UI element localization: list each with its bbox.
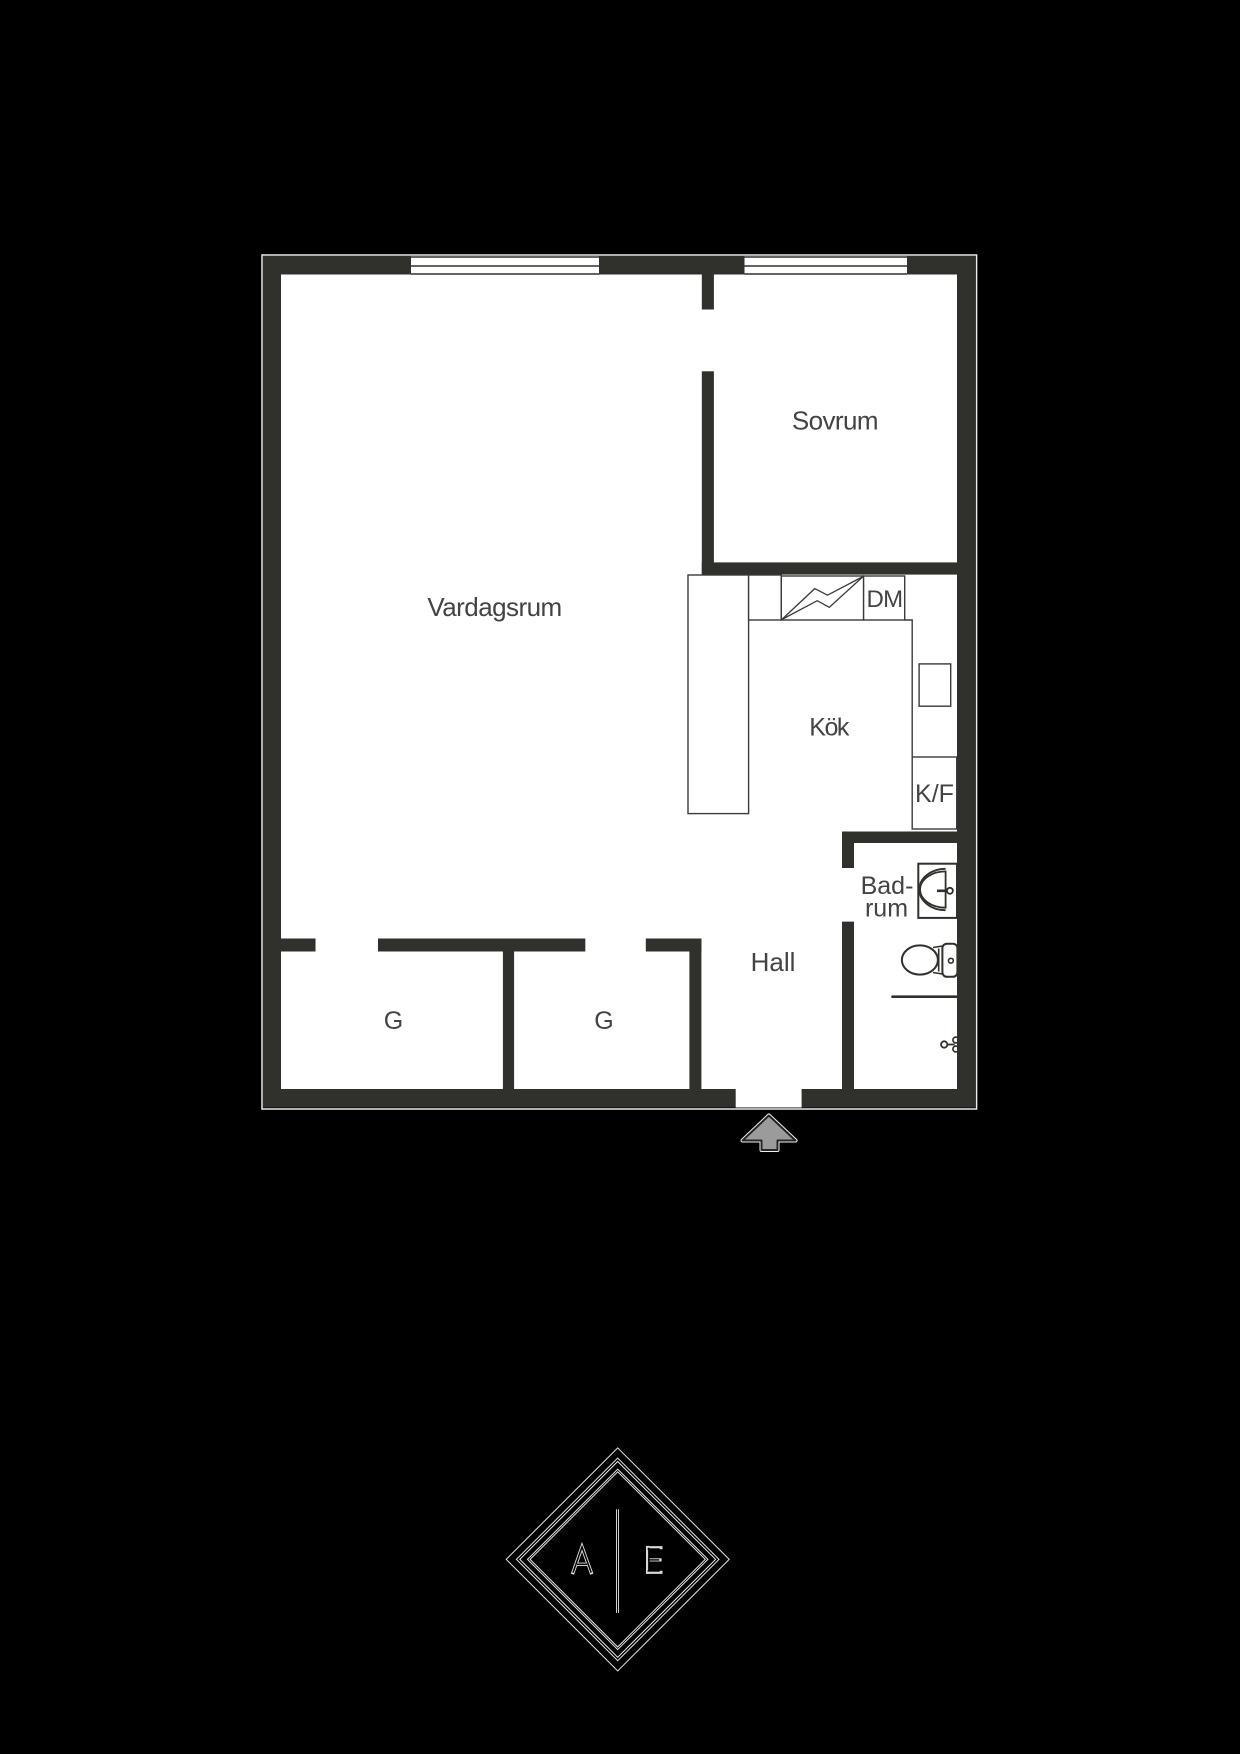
svg-text:Sovrum: Sovrum <box>792 406 878 436</box>
svg-text:Kök: Kök <box>809 714 850 742</box>
svg-text:Hall: Hall <box>751 947 796 977</box>
svg-text:Vardagsrum: Vardagsrum <box>427 592 561 622</box>
svg-text:G: G <box>594 1007 613 1035</box>
svg-text:DM: DM <box>866 586 902 613</box>
svg-text:rum: rum <box>865 895 908 923</box>
svg-text:G: G <box>384 1007 403 1035</box>
svg-text:K/F: K/F <box>915 780 954 808</box>
